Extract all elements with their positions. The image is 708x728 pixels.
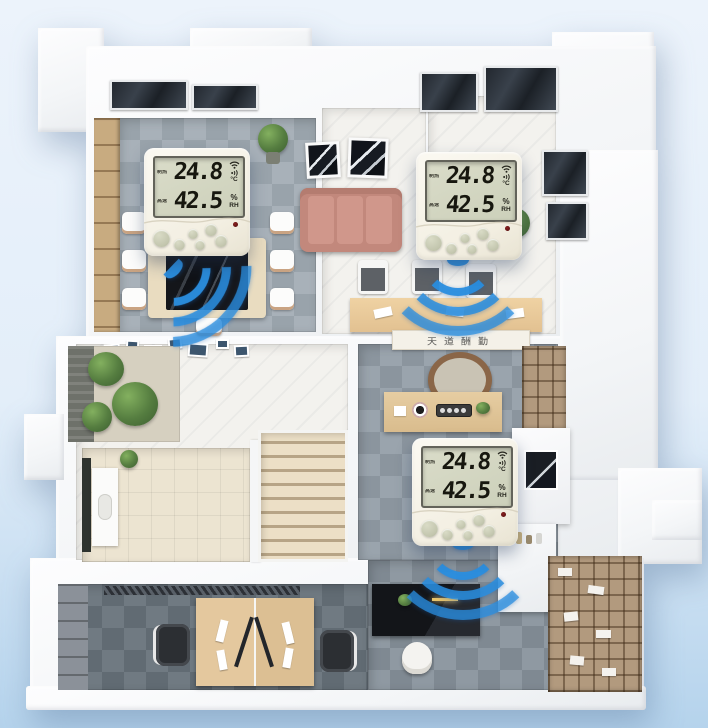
conference-chair bbox=[270, 250, 294, 272]
keyboard bbox=[282, 647, 293, 668]
monitor bbox=[254, 617, 274, 668]
device-button bbox=[442, 529, 453, 540]
device-button bbox=[215, 235, 227, 247]
office-shelf bbox=[58, 584, 88, 690]
window bbox=[542, 150, 588, 196]
temperature-row: 制热 24.8 °C bbox=[427, 162, 515, 191]
temperature-value: 24.8 bbox=[167, 161, 228, 184]
temperature-row: 制热 24.8 °C bbox=[423, 448, 511, 477]
keyboard bbox=[216, 649, 227, 670]
fan-label: 高速 bbox=[425, 489, 436, 495]
wall-vent bbox=[104, 586, 300, 595]
temperature-unit: °C bbox=[502, 181, 509, 188]
humidity-value: 42.5 bbox=[435, 480, 496, 503]
mode-label: 制热 bbox=[425, 460, 436, 466]
lcd-display: 制热 24.8 °C 高速 42.5 % RH bbox=[421, 446, 513, 508]
sensor-device-tea-room: 制热 24.8 °C 高速 42.5 % RH bbox=[412, 438, 518, 546]
tv-screen bbox=[110, 80, 188, 110]
temperature-value: 24.8 bbox=[439, 165, 500, 188]
humidity-unit: % bbox=[498, 484, 505, 492]
power-led bbox=[505, 226, 510, 231]
humidity-value: 42.5 bbox=[439, 194, 500, 217]
sofa-cushion bbox=[337, 196, 363, 244]
bathroom-vanity bbox=[92, 468, 118, 546]
device-button bbox=[460, 233, 470, 243]
device-button bbox=[473, 514, 485, 526]
staircase bbox=[258, 430, 348, 562]
temperature-row: 制热 24.8 °C bbox=[155, 158, 243, 187]
temperature-unit: °C bbox=[498, 467, 505, 474]
window bbox=[484, 66, 558, 112]
framed-art bbox=[526, 452, 556, 488]
tea-pot bbox=[412, 402, 428, 418]
office-chair bbox=[320, 630, 354, 672]
office-desks bbox=[196, 598, 314, 686]
potted-plant bbox=[258, 124, 288, 154]
wall-art bbox=[305, 141, 341, 179]
device-button bbox=[483, 525, 495, 537]
power-led bbox=[233, 222, 238, 227]
humidity-unit: % bbox=[230, 194, 237, 202]
window bbox=[420, 72, 478, 112]
plant-pot bbox=[266, 152, 280, 164]
device-button bbox=[456, 519, 466, 529]
desk-plant bbox=[476, 402, 490, 414]
device-button bbox=[174, 239, 185, 250]
device-button bbox=[205, 224, 217, 236]
potted-plant bbox=[120, 450, 138, 468]
sofa-cushion bbox=[308, 196, 334, 244]
bathroom-mirror bbox=[82, 458, 91, 552]
conference-chair bbox=[270, 212, 294, 234]
mode-label: 制热 bbox=[157, 170, 168, 176]
device-button bbox=[446, 243, 457, 254]
sensor-device-dining-room: 制热 24.8 °C 高速 42.5 % RH bbox=[416, 152, 522, 260]
device-button bbox=[153, 230, 170, 247]
humidity-row: 高速 42.5 % RH bbox=[155, 187, 243, 216]
device-button bbox=[195, 240, 205, 250]
window bbox=[546, 202, 588, 240]
tv-screen bbox=[192, 84, 258, 110]
lcd-display: 制热 24.8 °C 高速 42.5 % RH bbox=[425, 160, 517, 222]
keyboard bbox=[215, 619, 228, 642]
tea-tray bbox=[394, 406, 406, 416]
tea-desk bbox=[384, 392, 502, 432]
keyboard bbox=[281, 621, 294, 644]
humidity-suffix: RH bbox=[501, 207, 510, 214]
floor-plan-scene: 天道酬勤 bbox=[0, 0, 708, 728]
display-shelf bbox=[548, 556, 642, 692]
device-button bbox=[421, 520, 438, 537]
sensor-device-meeting-room: 制热 24.8 °C 高速 42.5 % RH bbox=[144, 148, 250, 256]
sink bbox=[98, 494, 112, 520]
humidity-suffix: RH bbox=[229, 203, 238, 210]
rooms-layer: 天道酬勤 bbox=[0, 0, 708, 728]
device-button bbox=[477, 228, 489, 240]
wifi-wave-tea-room bbox=[398, 536, 528, 666]
wall-shelf bbox=[522, 346, 566, 430]
device-button bbox=[188, 229, 198, 239]
device-button bbox=[463, 530, 473, 540]
tea-set-tray bbox=[436, 404, 472, 417]
wall-art bbox=[347, 137, 388, 178]
humidity-suffix: RH bbox=[497, 493, 506, 500]
temperature-value: 24.8 bbox=[435, 451, 496, 474]
device-button bbox=[425, 234, 442, 251]
wifi-wave-dining-room bbox=[398, 252, 518, 372]
device-button bbox=[467, 244, 477, 254]
device-button bbox=[487, 239, 499, 251]
office-chair bbox=[156, 624, 190, 666]
wifi-icon bbox=[501, 165, 512, 173]
wifi-icon bbox=[497, 451, 508, 459]
fan-label: 高速 bbox=[429, 203, 440, 209]
humidity-row: 高速 42.5 % RH bbox=[427, 191, 515, 220]
humidity-row: 高速 42.5 % RH bbox=[423, 477, 511, 506]
mode-label: 制热 bbox=[429, 174, 440, 180]
monitor bbox=[234, 617, 254, 668]
power-led bbox=[501, 512, 506, 517]
temperature-unit: °C bbox=[230, 177, 237, 184]
zen-garden bbox=[68, 346, 180, 442]
table-setting bbox=[373, 306, 392, 319]
humidity-unit: % bbox=[502, 198, 509, 206]
fan-label: 高速 bbox=[157, 199, 168, 205]
wifi-icon bbox=[229, 161, 240, 169]
humidity-value: 42.5 bbox=[167, 190, 228, 213]
lcd-display: 制热 24.8 °C 高速 42.5 % RH bbox=[153, 156, 245, 218]
